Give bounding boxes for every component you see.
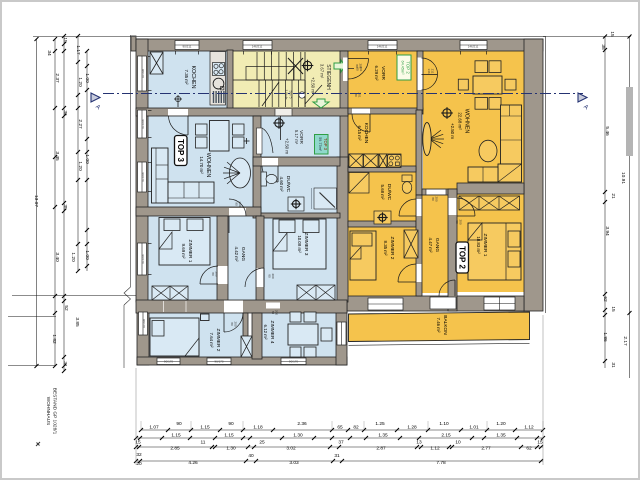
svg-text:6.15 m²: 6.15 m² bbox=[357, 126, 362, 141]
svg-text:31: 31 bbox=[62, 361, 68, 367]
svg-text:ZIMMER 1: ZIMMER 1 bbox=[482, 234, 488, 257]
svg-text:1.01: 1.01 bbox=[469, 425, 479, 431]
svg-text:32: 32 bbox=[136, 452, 142, 458]
svg-text:1.20: 1.20 bbox=[496, 421, 506, 427]
svg-text:10.83 m²: 10.83 m² bbox=[476, 236, 481, 254]
svg-text:146/211: 146/211 bbox=[252, 45, 263, 49]
svg-text:3.67 m²: 3.67 m² bbox=[320, 64, 325, 79]
svg-text:3.03: 3.03 bbox=[289, 460, 299, 466]
svg-text:1.86: 1.86 bbox=[602, 332, 608, 342]
svg-text:1.28: 1.28 bbox=[407, 425, 417, 431]
svg-text:3.45: 3.45 bbox=[54, 151, 60, 161]
svg-text:1.15: 1.15 bbox=[171, 433, 181, 439]
svg-text:2.27: 2.27 bbox=[77, 119, 83, 129]
svg-text:1.00: 1.00 bbox=[84, 154, 90, 164]
svg-text:90: 90 bbox=[228, 421, 234, 427]
svg-text:201: 201 bbox=[358, 63, 362, 68]
svg-text:5.68 m²: 5.68 m² bbox=[380, 185, 385, 200]
svg-text:1.30: 1.30 bbox=[226, 446, 236, 452]
svg-text:1.82: 1.82 bbox=[51, 334, 57, 344]
svg-text:200: 200 bbox=[271, 273, 275, 278]
svg-text:6.12 m²: 6.12 m² bbox=[263, 325, 268, 340]
svg-text:52: 52 bbox=[63, 305, 69, 311]
svg-text:1.20: 1.20 bbox=[77, 161, 83, 171]
svg-text:2.37: 2.37 bbox=[54, 73, 60, 83]
svg-text:15: 15 bbox=[537, 440, 543, 446]
svg-text:90/170: 90/170 bbox=[141, 254, 145, 264]
svg-text:64.45m²: 64.45m² bbox=[401, 61, 405, 76]
svg-text:STIEGENH: STIEGENH bbox=[325, 64, 331, 90]
svg-text:TOP 3: TOP 3 bbox=[176, 139, 185, 162]
svg-text:1.12: 1.12 bbox=[524, 425, 534, 431]
svg-text:36: 36 bbox=[62, 110, 68, 116]
svg-text:4.60 m²: 4.60 m² bbox=[279, 177, 284, 192]
svg-text:13: 13 bbox=[416, 440, 422, 446]
svg-text:34: 34 bbox=[46, 50, 52, 56]
svg-text:3.94: 3.94 bbox=[604, 226, 610, 236]
svg-text:14.70 m²: 14.70 m² bbox=[199, 156, 204, 174]
svg-text:ZIMMER 1: ZIMMER 1 bbox=[187, 240, 193, 263]
svg-text:2.36: 2.36 bbox=[297, 421, 307, 427]
svg-text:1.15: 1.15 bbox=[224, 433, 234, 439]
svg-text:9.69 m²: 9.69 m² bbox=[181, 244, 186, 259]
svg-text:31: 31 bbox=[334, 453, 340, 459]
svg-text:1.25: 1.25 bbox=[375, 421, 385, 427]
svg-text:1.00: 1.00 bbox=[84, 250, 90, 260]
svg-text:35: 35 bbox=[62, 204, 68, 210]
svg-text:4.26: 4.26 bbox=[188, 460, 198, 466]
svg-text:90: 90 bbox=[235, 202, 239, 206]
svg-text:ZIMMER 2: ZIMMER 2 bbox=[389, 237, 395, 260]
svg-text:3.02: 3.02 bbox=[286, 446, 296, 452]
svg-text:62: 62 bbox=[602, 296, 608, 302]
svg-text:BALKON: BALKON bbox=[442, 315, 448, 335]
svg-text:GANG: GANG bbox=[434, 238, 440, 252]
svg-text:82: 82 bbox=[353, 425, 359, 431]
svg-text:90/211: 90/211 bbox=[183, 45, 192, 49]
svg-text:90/170: 90/170 bbox=[141, 172, 145, 182]
svg-text:8.35 m²: 8.35 m² bbox=[383, 241, 388, 256]
svg-text:1.35: 1.35 bbox=[378, 433, 388, 439]
svg-text:1.20: 1.20 bbox=[77, 77, 83, 87]
svg-text:62: 62 bbox=[526, 446, 532, 452]
svg-text:146/211: 146/211 bbox=[468, 45, 479, 49]
svg-text:200: 200 bbox=[233, 321, 237, 326]
svg-text:80: 80 bbox=[431, 197, 435, 201]
svg-text:90/170: 90/170 bbox=[142, 319, 146, 329]
svg-text:38: 38 bbox=[600, 44, 606, 50]
svg-text:200: 200 bbox=[458, 219, 462, 224]
svg-text:13.07: 13.07 bbox=[33, 195, 39, 207]
svg-text:80: 80 bbox=[455, 220, 459, 224]
svg-text:65: 65 bbox=[337, 425, 343, 431]
svg-text:GANG: GANG bbox=[240, 247, 246, 261]
svg-text:90/170: 90/170 bbox=[141, 69, 145, 79]
svg-text:1.15: 1.15 bbox=[200, 425, 210, 431]
svg-text:146/211: 146/211 bbox=[377, 45, 388, 49]
svg-text:7.64 m²: 7.64 m² bbox=[209, 333, 214, 348]
svg-text:ZIMMER 3: ZIMMER 3 bbox=[303, 233, 309, 256]
svg-text:+2.50 m: +2.50 m bbox=[285, 138, 290, 154]
svg-text:1.00: 1.00 bbox=[84, 73, 90, 83]
svg-text:7.35 m²: 7.35 m² bbox=[184, 70, 189, 85]
svg-text:1 Stufe: 1 Stufe bbox=[284, 89, 288, 99]
svg-text:KOCHEN: KOCHEN bbox=[363, 123, 369, 144]
svg-text:15: 15 bbox=[610, 306, 616, 312]
svg-text:5.46: 5.46 bbox=[604, 126, 610, 136]
svg-text:3.85: 3.85 bbox=[74, 317, 80, 327]
svg-text:6.29 m²: 6.29 m² bbox=[374, 66, 379, 81]
svg-text:90/170: 90/170 bbox=[214, 360, 224, 364]
svg-text:200: 200 bbox=[214, 271, 218, 276]
svg-text:DU/WC: DU/WC bbox=[285, 176, 291, 193]
svg-text:90/170: 90/170 bbox=[141, 119, 145, 129]
svg-text:WOHNEN: WOHNEN bbox=[205, 153, 211, 178]
svg-text:1.17: 1.17 bbox=[75, 45, 81, 55]
svg-text:200: 200 bbox=[238, 201, 242, 206]
svg-text:2.87: 2.87 bbox=[376, 446, 386, 452]
svg-text:80: 80 bbox=[211, 272, 215, 276]
svg-text:31: 31 bbox=[610, 362, 616, 368]
svg-text:10.91: 10.91 bbox=[620, 172, 626, 184]
svg-text:21: 21 bbox=[610, 193, 616, 199]
svg-text:15: 15 bbox=[62, 37, 68, 43]
svg-text:146: 146 bbox=[427, 68, 431, 73]
svg-text:80: 80 bbox=[271, 311, 275, 315]
svg-text:1.20: 1.20 bbox=[70, 252, 76, 262]
svg-text:1.30: 1.30 bbox=[293, 433, 303, 439]
svg-text:80: 80 bbox=[230, 322, 234, 326]
svg-text:11: 11 bbox=[201, 440, 206, 446]
svg-text:10: 10 bbox=[455, 440, 461, 446]
svg-text:TOP 2: TOP 2 bbox=[457, 246, 466, 269]
svg-text:+2.50 m: +2.50 m bbox=[311, 77, 316, 93]
svg-text:15: 15 bbox=[609, 31, 615, 37]
svg-text:+2.50 m: +2.50 m bbox=[450, 123, 455, 139]
svg-text:TOP 2: TOP 2 bbox=[406, 61, 411, 74]
svg-text:DU/WC: DU/WC bbox=[386, 184, 392, 201]
svg-text:3.40: 3.40 bbox=[54, 252, 60, 262]
svg-text:WOHNHAUS: WOHNHAUS bbox=[45, 397, 51, 426]
svg-text:7.78: 7.78 bbox=[436, 460, 446, 466]
svg-text:5.17 m²: 5.17 m² bbox=[294, 130, 299, 145]
svg-text:1.10: 1.10 bbox=[439, 421, 449, 427]
svg-text:2.85: 2.85 bbox=[170, 446, 180, 452]
svg-text:TOP 3: TOP 3 bbox=[323, 138, 328, 151]
svg-text:80: 80 bbox=[355, 64, 359, 68]
svg-text:KOCHEN: KOCHEN bbox=[190, 65, 196, 88]
svg-text:90/170: 90/170 bbox=[289, 360, 299, 364]
svg-text:200: 200 bbox=[434, 196, 438, 201]
svg-text:80: 80 bbox=[268, 274, 272, 278]
svg-text:20: 20 bbox=[136, 461, 142, 467]
svg-text:1.07: 1.07 bbox=[149, 425, 159, 431]
svg-text:1.35: 1.35 bbox=[496, 433, 506, 439]
svg-text:200: 200 bbox=[274, 310, 278, 315]
svg-text:7.46 m²: 7.46 m² bbox=[436, 318, 441, 333]
svg-text:37: 37 bbox=[338, 440, 344, 446]
svg-text:2.17: 2.17 bbox=[622, 336, 628, 346]
svg-text:ZIMMER 2: ZIMMER 2 bbox=[215, 329, 221, 352]
svg-text:90/170: 90/170 bbox=[164, 360, 174, 364]
svg-text:59.77m²: 59.77m² bbox=[318, 137, 322, 151]
svg-text:1.18: 1.18 bbox=[253, 425, 263, 431]
svg-text:10.08 m²: 10.08 m² bbox=[297, 235, 302, 253]
svg-text:VORR: VORR bbox=[380, 66, 386, 80]
svg-text:40: 40 bbox=[248, 453, 254, 459]
svg-text:4.47 m²: 4.47 m² bbox=[428, 238, 433, 253]
svg-text:WOHNEN: WOHNEN bbox=[464, 109, 470, 134]
svg-text:90: 90 bbox=[176, 421, 182, 427]
svg-text:2.77: 2.77 bbox=[481, 446, 491, 452]
svg-text:25: 25 bbox=[259, 440, 265, 446]
svg-text:ZIMMER 4: ZIMMER 4 bbox=[269, 321, 275, 344]
svg-text:50/75: 50/75 bbox=[289, 91, 293, 99]
svg-text:4.42 m²: 4.42 m² bbox=[234, 247, 239, 262]
svg-text:2.15: 2.15 bbox=[441, 433, 451, 439]
svg-text:22.68 m²: 22.68 m² bbox=[458, 112, 463, 130]
svg-text:BESTAND GP 1028/1: BESTAND GP 1028/1 bbox=[52, 388, 58, 435]
svg-text:211: 211 bbox=[430, 69, 434, 74]
svg-text:1.12: 1.12 bbox=[430, 446, 440, 452]
